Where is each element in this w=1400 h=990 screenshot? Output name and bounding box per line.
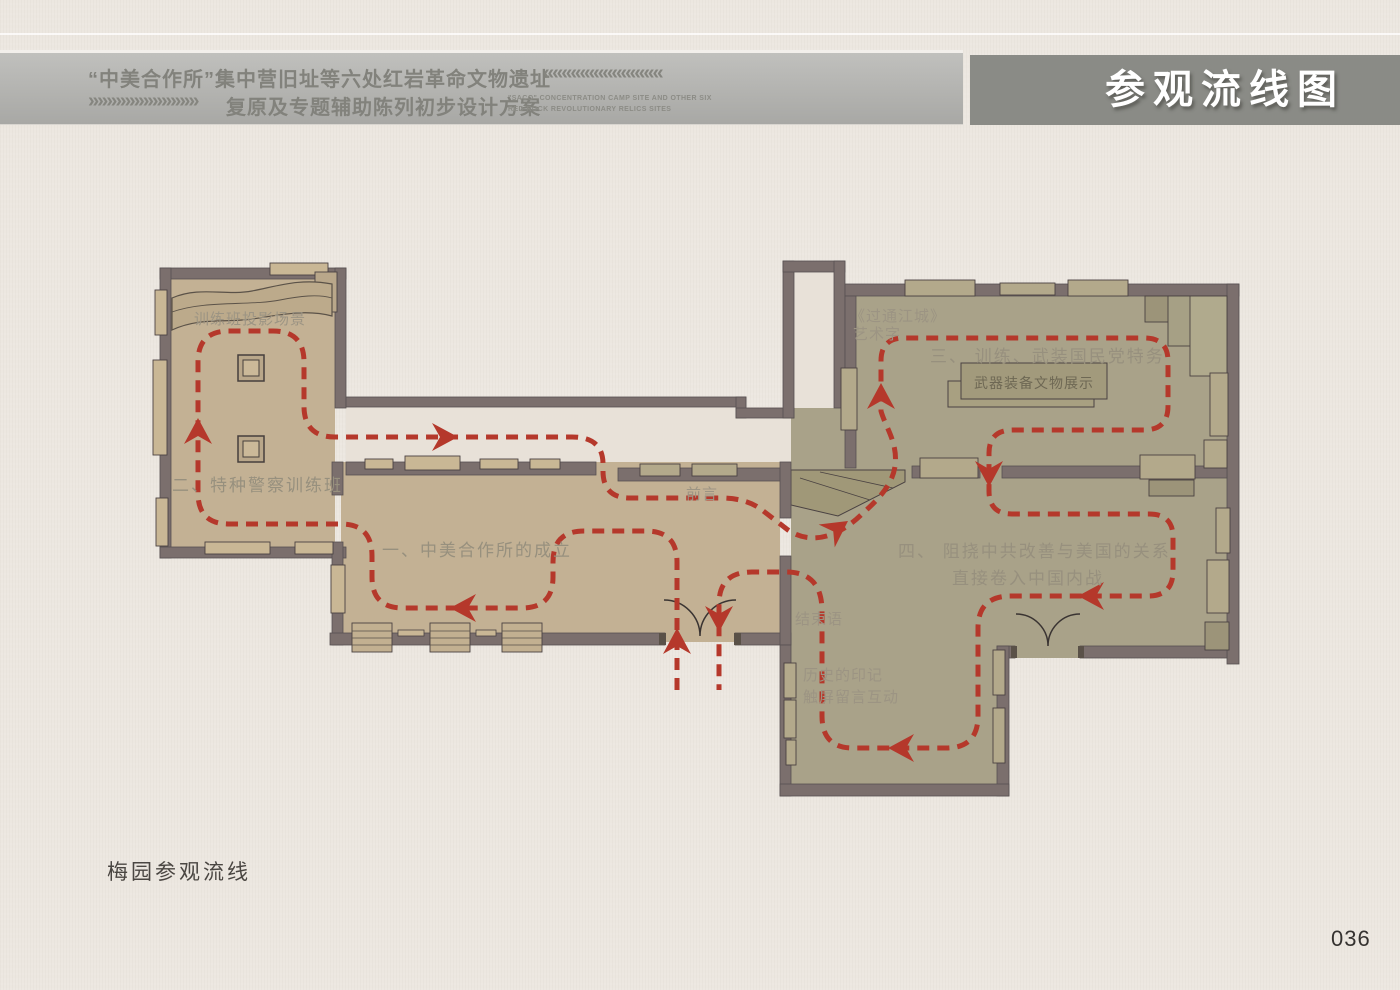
design-document-page: “中美合作所”集中营旧址等六处红岩革命文物遗址 ««««««««««««« »»… <box>0 0 1400 990</box>
room4-label-line1: 四、 阻挠中共改善与美国的关系 <box>898 542 1171 561</box>
weapons-display-platform: 武器装备文物展示 <box>948 363 1107 407</box>
artwork-label-line2: 艺术字 <box>853 326 901 343</box>
room2-label: 二、特种警察训练班 <box>172 476 343 495</box>
artwork-label-line1: 《过通江城》 <box>850 308 946 325</box>
interactive-label-line1: 历史的印记 <box>803 667 883 684</box>
conclusion-label: 结束语 <box>795 611 843 628</box>
floor-plan: 武器装备文物展示 训练班投 <box>0 0 1400 990</box>
interactive-label-line2: 触屏留言互动 <box>803 689 899 706</box>
room4-label-line2: 直接卷入中国内战 <box>952 569 1104 588</box>
room2-feature-label: 训练班投影场景 <box>194 311 306 328</box>
plan-caption: 梅园参观流线 <box>107 856 251 886</box>
hatched-display-cases <box>352 623 542 652</box>
room3-label: 三、 训练、武装国民党特务 <box>930 347 1165 366</box>
page-number: 036 <box>1331 926 1371 952</box>
foreword-label: 前言 <box>686 486 718 503</box>
room1-label: 一、中美合作所的成立 <box>382 541 572 560</box>
room3-display-label: 武器装备文物展示 <box>974 375 1094 391</box>
